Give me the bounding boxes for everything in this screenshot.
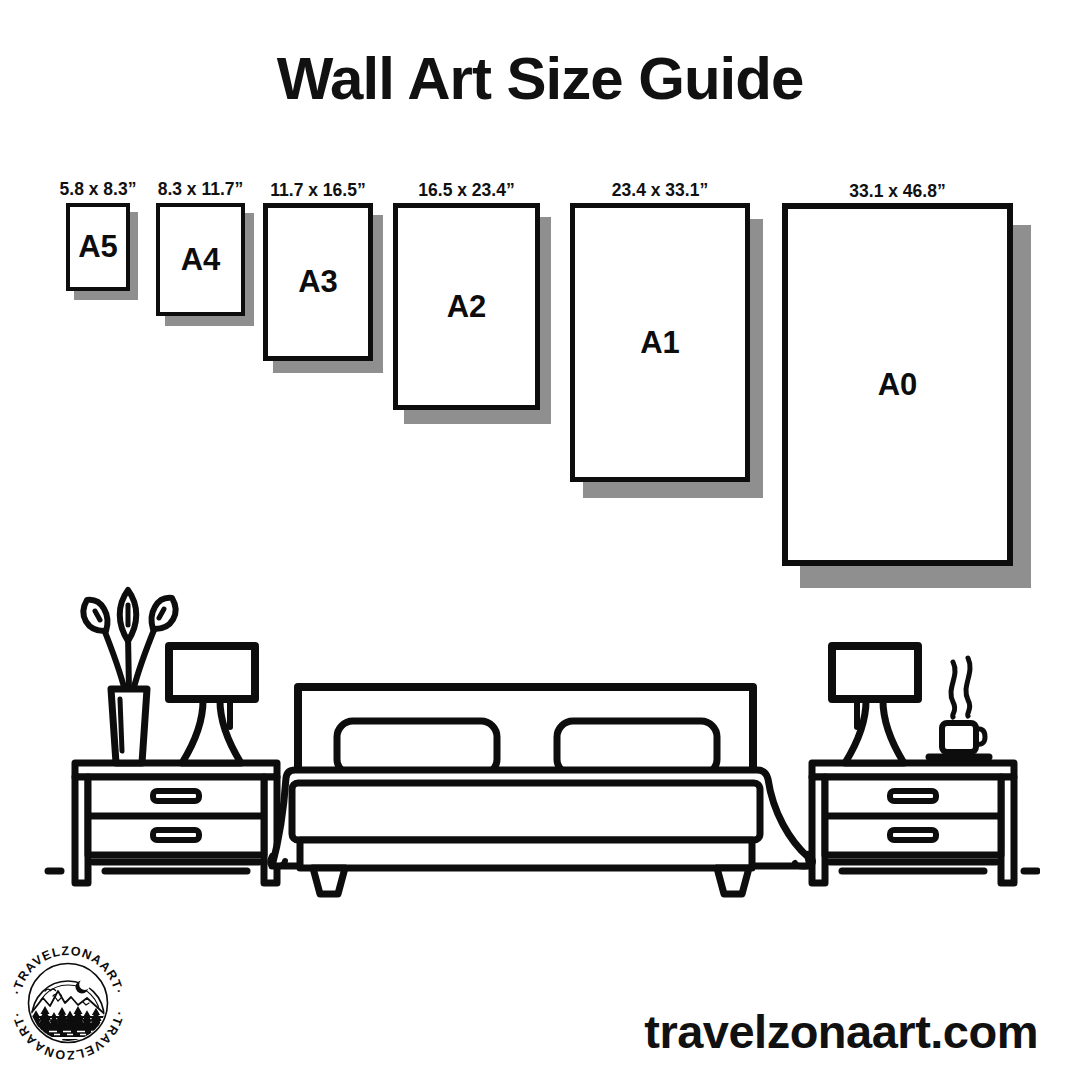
mattress-band bbox=[292, 783, 760, 840]
paper-dimension-label: 8.3 x 11.7” bbox=[158, 179, 244, 200]
steam-icon bbox=[951, 662, 955, 717]
paper-size-a3: 11.7 x 16.5” A3 bbox=[263, 203, 373, 361]
steam-icon bbox=[966, 658, 970, 716]
bed-leg-left bbox=[313, 868, 345, 894]
paper-size-a0: 33.1 x 46.8” A0 bbox=[782, 203, 1013, 566]
paper-size-label: A1 bbox=[640, 325, 680, 361]
badge-text-top: ·TRAVELZONAART· bbox=[10, 944, 126, 996]
bird-icon bbox=[45, 989, 56, 991]
paper-size-label: A5 bbox=[78, 229, 118, 265]
paper-size-label: A4 bbox=[181, 242, 221, 278]
table-lamp-right bbox=[832, 646, 918, 763]
bed-frame bbox=[300, 840, 752, 868]
paper-dimension-label: 16.5 x 23.4” bbox=[418, 180, 514, 201]
bed-leg-right bbox=[717, 868, 749, 894]
paper-size-label: A3 bbox=[298, 264, 338, 300]
paper-size-a1: 23.4 x 33.1” A1 bbox=[570, 203, 750, 482]
bedroom-scene-illustration bbox=[40, 585, 1040, 900]
plant-vase bbox=[83, 590, 175, 763]
paper-dimension-label: 5.8 x 8.3” bbox=[60, 179, 137, 200]
badge-illustration bbox=[28, 979, 108, 1044]
paper-dimension-label: 33.1 x 46.8” bbox=[849, 181, 945, 202]
size-guide-poster: Wall Art Size Guide 5.8 x 8.3” A5 8.3 x … bbox=[0, 0, 1080, 1080]
bed bbox=[270, 687, 813, 894]
paper-size-label: A0 bbox=[878, 367, 918, 403]
paper-dimension-label: 11.7 x 16.5” bbox=[270, 180, 365, 201]
page-title: Wall Art Size Guide bbox=[0, 44, 1080, 113]
coffee-cup bbox=[929, 658, 989, 757]
nightstand-left bbox=[75, 763, 277, 883]
nightstand-right bbox=[812, 763, 1014, 883]
table-lamp-left bbox=[169, 646, 255, 763]
website-url: travelzonaart.com bbox=[644, 1004, 1038, 1059]
paper-size-a5: 5.8 x 8.3” A5 bbox=[66, 203, 130, 291]
paper-size-label: A2 bbox=[447, 289, 487, 325]
paper-size-a2: 16.5 x 23.4” A2 bbox=[393, 203, 540, 410]
paper-size-a4: 8.3 x 11.7” A4 bbox=[156, 203, 245, 316]
paper-dimension-label: 23.4 x 33.1” bbox=[612, 180, 708, 201]
brand-logo-badge: ·TRAVELZONAART· ·TRAVELZONAART· bbox=[8, 942, 128, 1064]
